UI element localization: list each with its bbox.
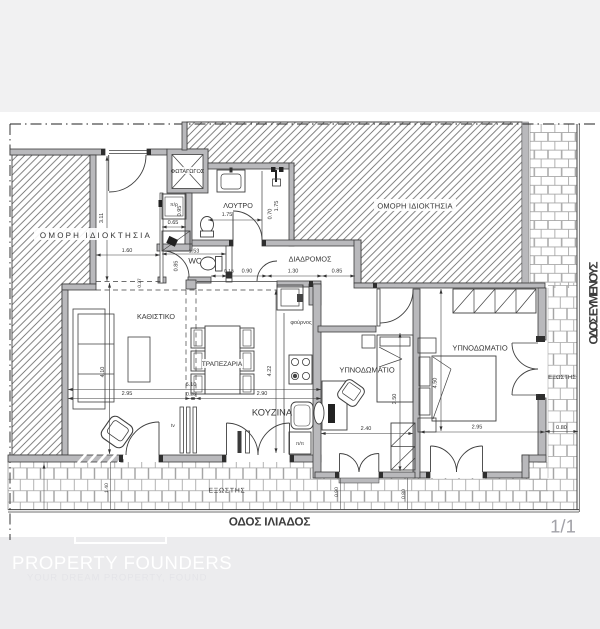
svg-text:ΟΜΟΡΗ ΙΔΙΟΚΤΗΣΙΑ: ΟΜΟΡΗ ΙΔΙΟΚΤΗΣΙΑ: [377, 202, 452, 211]
svg-text:1.75: 1.75: [222, 212, 233, 218]
svg-text:2.40: 2.40: [361, 426, 372, 432]
svg-text:3.11: 3.11: [99, 213, 105, 223]
svg-text:0.85: 0.85: [174, 261, 180, 272]
svg-text:1.30: 1.30: [288, 269, 299, 275]
svg-text:0.15: 0.15: [224, 269, 234, 275]
svg-text:ΚΟΥΖΙΝΑ: ΚΟΥΖΙΝΑ: [252, 408, 293, 418]
svg-text:0.27: 0.27: [137, 278, 143, 288]
svg-text:2.95: 2.95: [122, 391, 133, 397]
svg-text:ΕΞΩΣΤΗΣ: ΕΞΩΣΤΗΣ: [208, 488, 245, 495]
svg-text:PROPERTY FOUNDERS: PROPERTY FOUNDERS: [12, 552, 232, 573]
svg-text:ΛΟΥΤΡΟ: ΛΟΥΤΡΟ: [223, 201, 253, 210]
svg-text:1.40: 1.40: [104, 483, 110, 493]
svg-text:1/1: 1/1: [550, 516, 576, 537]
svg-text:ΥΠΝΟΔΩΜΑΤΙΟ: ΥΠΝΟΔΩΜΑΤΙΟ: [339, 366, 394, 375]
svg-text:0.95: 0.95: [177, 206, 183, 217]
svg-text:0.80: 0.80: [556, 425, 567, 431]
svg-text:ΚΑΘΙΣΤΙΚΟ: ΚΑΘΙΣΤΙΚΟ: [137, 312, 175, 321]
svg-text:0.70: 0.70: [268, 209, 274, 220]
svg-text:ΟΜΟΡΗ ΙΔΙΟΚΤΗΣΙΑ: ΟΜΟΡΗ ΙΔΙΟΚΤΗΣΙΑ: [40, 231, 152, 240]
svg-text:4.50: 4.50: [433, 378, 439, 389]
svg-text:ΥΠΝΟΔΩΜΑΤΙΟ: ΥΠΝΟΔΩΜΑΤΙΟ: [452, 344, 507, 353]
svg-text:1.60: 1.60: [122, 248, 133, 254]
svg-text:ΟΔΟΣ ΕΥΜΕΝΟΥΣ: ΟΔΟΣ ΕΥΜΕΝΟΥΣ: [587, 262, 600, 345]
svg-text:6.10: 6.10: [186, 382, 197, 388]
svg-text:4.22: 4.22: [267, 366, 273, 377]
svg-text:4.10: 4.10: [100, 367, 106, 378]
svg-text:ΤΡΑΠΕΖΑΡΙΑ: ΤΡΑΠΕΖΑΡΙΑ: [202, 361, 243, 368]
svg-text:0.90: 0.90: [334, 487, 340, 497]
svg-text:2.90: 2.90: [257, 391, 268, 397]
svg-text:ΕΞΩΣΤΗΣ: ΕΞΩΣΤΗΣ: [548, 374, 576, 381]
svg-text:0.65: 0.65: [168, 220, 179, 226]
svg-text:0.90: 0.90: [242, 269, 253, 275]
svg-text:π/π: π/π: [296, 441, 305, 447]
svg-text:0.85: 0.85: [332, 269, 343, 275]
svg-text:WC: WC: [188, 257, 202, 266]
svg-text:ΦΩΤΑΓΩΓΟΣ: ΦΩΤΑΓΩΓΟΣ: [171, 169, 205, 175]
svg-text:1.53: 1.53: [189, 249, 200, 255]
svg-text:2.95: 2.95: [472, 425, 483, 431]
svg-text:tv: tv: [171, 423, 175, 429]
svg-text:ΟΔΟΣ ΙΛΙΑΔΟΣ: ΟΔΟΣ ΙΛΙΑΔΟΣ: [229, 515, 311, 529]
svg-text:φούρνος: φούρνος: [290, 319, 312, 326]
svg-text:YOUR DREAM PROPERTY, FOUND: YOUR DREAM PROPERTY, FOUND: [27, 573, 207, 584]
svg-text:1.75: 1.75: [274, 201, 280, 212]
svg-text:3.50: 3.50: [392, 394, 398, 405]
svg-text:0.25: 0.25: [186, 392, 196, 398]
svg-text:0.80: 0.80: [401, 489, 407, 499]
svg-text:ΔΙΑΔΡΟΜΟΣ: ΔΙΑΔΡΟΜΟΣ: [289, 255, 332, 264]
